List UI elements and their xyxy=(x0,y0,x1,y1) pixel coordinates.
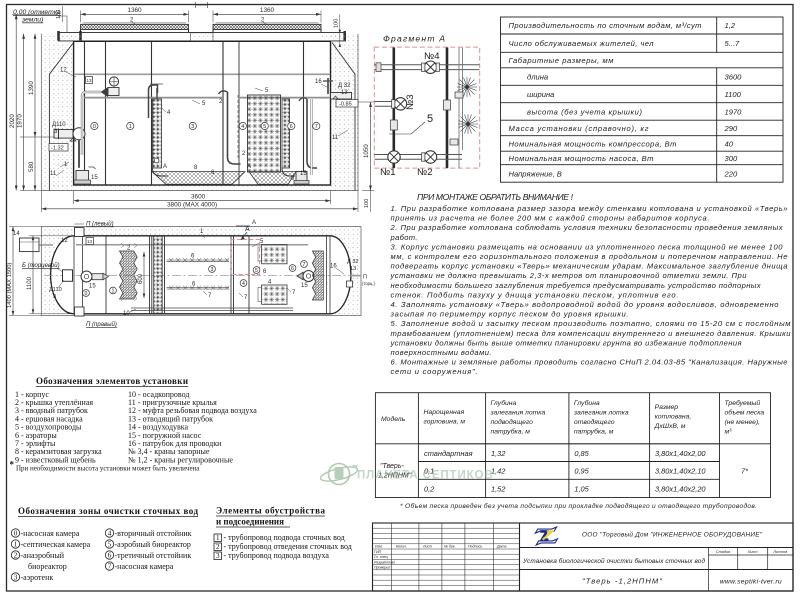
svg-text:- трубопровод подвода воздуха: - трубопровод подвода воздуха xyxy=(224,551,330,560)
svg-text:3: 3 xyxy=(216,551,220,560)
svg-text:6: 6 xyxy=(108,551,112,560)
svg-text:-септическая камера: -септическая камера xyxy=(21,540,91,549)
svg-text:Глубина: Глубина xyxy=(491,399,517,407)
svg-text:ГИП: ГИП xyxy=(374,550,382,554)
svg-text:6. Монтажные и земляные работы: 6. Монтажные и земляные работы проводить… xyxy=(391,358,788,367)
svg-text:поверхностными водами.: поверхностными водами. xyxy=(391,348,492,357)
svg-text:1: 1 xyxy=(216,533,220,542)
svg-text:залегания лотка: залегания лотка xyxy=(490,410,546,417)
svg-text:14: 14 xyxy=(13,231,20,237)
svg-text:Подпись: Подпись xyxy=(468,545,482,549)
svg-text:Дата: Дата xyxy=(496,545,506,549)
svg-text:3800 (MAX 4000): 3800 (MAX 4000) xyxy=(167,202,217,209)
svg-text:* Объем песка приведен без уче: * Объем песка приведен без учета подсыпк… xyxy=(400,502,757,510)
svg-text:П (правый): П (правый) xyxy=(86,321,117,328)
svg-text:13: 13 xyxy=(87,78,93,83)
svg-text:3. Корпус установки размещать: 3. Корпус установки размещать на основан… xyxy=(391,242,784,251)
svg-text:установки не должно превышать: установки не должно превышать 2,3-х метр… xyxy=(390,271,748,280)
svg-text:1,32: 1,32 xyxy=(491,449,505,458)
svg-text:7: 7 xyxy=(303,262,306,268)
svg-text:-анаэробный: -анаэробный xyxy=(21,551,65,560)
svg-text:Листов: Листов xyxy=(772,550,787,554)
svg-text:3: 3 xyxy=(53,294,56,300)
svg-text:№1: №1 xyxy=(380,167,395,178)
svg-text:290: 290 xyxy=(724,124,738,133)
svg-text:3,80х1,40х2,20: 3,80х1,40х2,20 xyxy=(655,485,706,494)
svg-text:5. Заполнение водой и засыпку: 5. Заполнение водой и засыпку песком про… xyxy=(391,319,792,328)
svg-text:1050: 1050 xyxy=(363,144,370,158)
svg-text:Б (торцевой): Б (торцевой) xyxy=(22,262,60,269)
svg-text:-аэротенк: -аэротенк xyxy=(21,573,54,582)
svg-text:Д110: Д110 xyxy=(52,122,66,128)
svg-text:(не менее),: (не менее), xyxy=(725,419,761,426)
svg-text:5: 5 xyxy=(263,124,266,130)
svg-text:40: 40 xyxy=(725,139,734,148)
svg-text:0,95: 0,95 xyxy=(574,467,589,476)
svg-text:мм, с контролем его горизонтал: мм, с контролем его горизонтального поло… xyxy=(391,252,788,261)
svg-text:- трубопровод подвода сточных: - трубопровод подвода сточных вод xyxy=(224,533,345,542)
svg-text:1100: 1100 xyxy=(27,276,33,290)
svg-text:A: A xyxy=(245,226,250,233)
svg-text:100: 100 xyxy=(334,19,340,28)
svg-text:1100: 1100 xyxy=(725,90,742,99)
svg-text:15: 15 xyxy=(301,283,308,289)
svg-text:3600: 3600 xyxy=(191,194,206,201)
svg-text:ширина: ширина xyxy=(527,90,554,99)
svg-text:котлована,: котлована, xyxy=(655,414,692,421)
svg-text:стенок. Подбить пазуху у днищ: стенок. Подбить пазуху у днища установки… xyxy=(391,290,679,299)
svg-text:Гл. спец.: Гл. спец. xyxy=(374,555,389,559)
svg-text:-насосная камера: -насосная камера xyxy=(115,562,174,571)
svg-text:7*: 7* xyxy=(741,467,749,476)
svg-text:0,85: 0,85 xyxy=(574,449,589,458)
svg-text:№4: №4 xyxy=(424,51,439,62)
svg-text:3: 3 xyxy=(191,124,194,130)
svg-text:Модель: Модель xyxy=(381,415,406,423)
svg-text:Размер: Размер xyxy=(655,404,679,411)
svg-text:220: 220 xyxy=(724,169,738,178)
svg-text:"Тверь -1,2НПНМ": "Тверь -1,2НПНМ" xyxy=(582,577,662,586)
svg-text:стандартная: стандартная xyxy=(424,449,473,458)
svg-text:Производительность по сточным: Производительность по сточным водам, м³/… xyxy=(509,21,702,30)
svg-text:4: 4 xyxy=(108,529,112,538)
svg-text:7: 7 xyxy=(315,124,318,130)
svg-text:№3: №3 xyxy=(405,95,416,110)
svg-text:15: 15 xyxy=(89,284,96,290)
svg-text:трамбованием (уплотнением) пес: трамбованием (уплотнением) песка для ком… xyxy=(391,329,792,338)
svg-text:3: 3 xyxy=(14,573,18,582)
svg-text:Лист: Лист xyxy=(422,545,432,549)
svg-text:1: 1 xyxy=(14,540,18,549)
svg-text:2020: 2020 xyxy=(9,114,16,128)
svg-text:15: 15 xyxy=(300,171,307,177)
svg-text:(торц.): (торц.) xyxy=(362,281,375,286)
svg-text:4: 4 xyxy=(242,281,245,287)
svg-text:высота (без учета крышки): высота (без учета крышки) xyxy=(527,107,642,116)
svg-text:-вторичный отстойник: -вторичный отстойник xyxy=(115,529,192,538)
svg-text:принять из расчета не более 20: принять из расчета не более 200 мм с каж… xyxy=(391,214,710,223)
svg-text:16: 16 xyxy=(330,264,337,270)
svg-text:- трубопровод отведения сточны: - трубопровод отведения сточных вод xyxy=(224,542,352,551)
svg-text:www.septiki-tver.ru: www.septiki-tver.ru xyxy=(720,579,782,586)
svg-text:2. При разработке котлована со: 2. При разработке котлована соблюдать ус… xyxy=(390,223,784,232)
svg-text:13: 13 xyxy=(87,239,93,244)
svg-text:3600: 3600 xyxy=(725,73,743,82)
svg-text:13: 13 xyxy=(350,266,356,272)
svg-text:11: 11 xyxy=(332,135,339,141)
svg-text:ПРИ МОНТАЖЕ ОБРАТИТЬ ВНИМАНИЕ: ПРИ МОНТАЖЕ ОБРАТИТЬ ВНИМАНИЕ ! xyxy=(417,192,574,202)
svg-text:ООО "Торговый Дом "ИНЖЕНЕРНОЕ: ООО "Торговый Дом "ИНЖЕНЕРНОЕ ОБОРУДОВАН… xyxy=(582,531,763,539)
svg-text:13: 13 xyxy=(341,90,348,96)
svg-text:объем песка: объем песка xyxy=(725,409,765,417)
svg-text:№ док.: № док. xyxy=(444,545,456,549)
svg-text:Обозначения элементов установк: Обозначения элементов установки xyxy=(36,376,188,386)
svg-text:№2: №2 xyxy=(417,167,432,178)
svg-text:4: 4 xyxy=(241,124,244,130)
svg-text:ПЛАНЕТА СЕПТИКОВ: ПЛАНЕТА СЕПТИКОВ xyxy=(357,470,494,482)
svg-text:-насосная камера: -насосная камера xyxy=(21,529,80,538)
svg-text:2: 2 xyxy=(216,542,220,551)
svg-text:Номинальная мощность насоса, В: Номинальная мощность насоса, Вт xyxy=(509,154,654,163)
svg-text:засыпая по периметру корпус пе: засыпая по периметру корпус песком до ур… xyxy=(390,310,629,319)
svg-text:Нарощенная: Нарощенная xyxy=(424,409,465,416)
svg-text:600: 600 xyxy=(138,273,144,284)
svg-text:П (левый): П (левый) xyxy=(86,221,114,228)
svg-text:Глубина: Глубина xyxy=(574,399,600,407)
svg-text:0: 0 xyxy=(14,529,18,538)
svg-text:2: 2 xyxy=(14,551,18,560)
svg-text:работ.: работ. xyxy=(390,233,418,242)
svg-text:Д 32: Д 32 xyxy=(347,259,359,265)
svg-text:м³: м³ xyxy=(725,429,733,436)
svg-text:длина: длина xyxy=(527,73,548,82)
svg-text:Фрагмент А: Фрагмент А xyxy=(383,34,445,44)
svg-text:3: 3 xyxy=(211,267,214,273)
svg-text:установки должны быть выше отм: установки должны быть выше отметки плани… xyxy=(390,338,742,347)
svg-text:A: A xyxy=(163,164,167,170)
svg-text:П: П xyxy=(363,275,367,281)
svg-text:1. При разработке котлована ра: 1. При разработке котлована размер зазор… xyxy=(391,204,788,213)
svg-text:9 - известковый щебень: 9 - известковый щебень xyxy=(15,455,96,464)
svg-text:5: 5 xyxy=(255,268,258,274)
svg-text:патрубка, м: патрубка, м xyxy=(574,428,614,436)
svg-text:0: 0 xyxy=(93,124,96,130)
svg-text:земли): земли) xyxy=(21,17,43,24)
svg-text:1400 (MAX 1500): 1400 (MAX 1500) xyxy=(7,262,13,308)
svg-text:300: 300 xyxy=(725,154,738,163)
svg-text:Колич.: Колич. xyxy=(396,545,407,549)
svg-text:5: 5 xyxy=(427,113,433,125)
svg-text:-1.32: -1.32 xyxy=(51,146,64,152)
svg-text:сети и сооружения".: сети и сооружения". xyxy=(391,367,478,376)
svg-text:подвергать корпус установки «Т: подвергать корпус установки «Тверь» меха… xyxy=(391,262,788,271)
svg-text:Д110: Д110 xyxy=(49,287,62,293)
svg-text:*: * xyxy=(10,460,15,470)
svg-text:12: 12 xyxy=(61,238,68,244)
svg-text:12: 12 xyxy=(60,68,67,74)
svg-text:необходимости большего заглубл: необходимости большего заглубления требу… xyxy=(391,281,762,290)
svg-text:7: 7 xyxy=(108,562,112,571)
svg-text:-аэробный биореактор: -аэробный биореактор xyxy=(115,540,191,549)
svg-text:1,2: 1,2 xyxy=(725,21,736,30)
svg-text:Разработал: Разработал xyxy=(374,560,395,564)
svg-text:Число обслуживаемых жителей, ч: Число обслуживаемых жителей, чел xyxy=(509,39,655,48)
svg-text:10: 10 xyxy=(123,311,130,317)
svg-text:отводящего: отводящего xyxy=(574,418,615,426)
svg-text:и подсоединения: и подсоединения xyxy=(216,517,284,527)
svg-text:0.00 (отметка: 0.00 (отметка xyxy=(13,9,61,16)
svg-text:Элементы обустройства: Элементы обустройства xyxy=(216,506,326,516)
svg-text:580: 580 xyxy=(28,161,35,172)
svg-text:Обозначения зоны очистки сточн: Обозначения зоны очистки сточных вод xyxy=(18,506,198,516)
svg-text:1,52: 1,52 xyxy=(491,485,505,494)
svg-text:1: 1 xyxy=(129,124,132,130)
svg-text:100: 100 xyxy=(364,199,370,208)
svg-text:15: 15 xyxy=(91,175,98,181)
svg-text:6: 6 xyxy=(290,124,293,130)
svg-text:0,2: 0,2 xyxy=(424,485,434,494)
svg-text:Габаритные размеры, мм: Габаритные размеры, мм xyxy=(509,56,615,65)
svg-text:ДхШхВ, м: ДхШхВ, м xyxy=(654,423,686,430)
svg-text:5...7: 5...7 xyxy=(725,39,741,48)
svg-text:1970: 1970 xyxy=(725,107,743,116)
svg-text:Лист: Лист xyxy=(747,550,758,554)
svg-text:0: 0 xyxy=(85,291,88,297)
svg-text:Требуемый: Требуемый xyxy=(725,399,761,407)
svg-text:горловина, м: горловина, м xyxy=(424,419,466,426)
svg-text:подводящего: подводящего xyxy=(491,418,534,426)
svg-text:биореактор: биореактор xyxy=(28,562,67,571)
svg-text:Д 32: Д 32 xyxy=(338,83,351,89)
svg-text:залегания лотка: залегания лотка xyxy=(573,410,629,417)
svg-text:При необходимости высота устан: При необходимости высота установки может… xyxy=(16,465,200,473)
svg-text:1360: 1360 xyxy=(127,7,142,14)
svg-text:6: 6 xyxy=(291,266,294,272)
svg-text:Проверил: Проверил xyxy=(374,566,390,570)
svg-text:3,80х1,40х2,00: 3,80х1,40х2,00 xyxy=(655,449,706,458)
svg-text:патрубка, м: патрубка, м xyxy=(491,428,531,436)
svg-text:1390: 1390 xyxy=(28,81,35,95)
svg-text:A: A xyxy=(247,164,251,170)
svg-text:1: 1 xyxy=(112,289,115,295)
svg-text:Изм.: Изм. xyxy=(375,545,383,549)
svg-text:1,05: 1,05 xyxy=(574,485,589,494)
svg-text:11: 11 xyxy=(50,171,57,177)
svg-text:1360: 1360 xyxy=(260,7,275,14)
svg-text:Напряжение, В: Напряжение, В xyxy=(509,169,562,178)
svg-text:4. Заполнять установку «Тверь»: 4. Заполнять установку «Тверь» водопрово… xyxy=(391,300,779,309)
svg-text:1970: 1970 xyxy=(16,114,23,128)
svg-text:Стадия: Стадия xyxy=(716,550,730,554)
svg-text:Номинальная мощность компрессо: Номинальная мощность компрессора, Вт xyxy=(509,139,677,148)
svg-text:-0.85: -0.85 xyxy=(339,102,352,108)
svg-text:№ 1,2 - краны регулировочные: № 1,2 - краны регулировочные xyxy=(128,455,233,464)
svg-text:Установка биологической очистк: Установка биологической очистки бытовых … xyxy=(522,557,705,565)
svg-text:Масса установки (справочно), к: Масса установки (справочно), кг xyxy=(509,124,649,133)
svg-text:5: 5 xyxy=(108,540,112,549)
svg-text:A: A xyxy=(252,220,256,226)
svg-text:-третичный отстойник: -третичный отстойник xyxy=(115,551,192,560)
svg-text:3,80х1,40х2,10: 3,80х1,40х2,10 xyxy=(655,467,706,476)
